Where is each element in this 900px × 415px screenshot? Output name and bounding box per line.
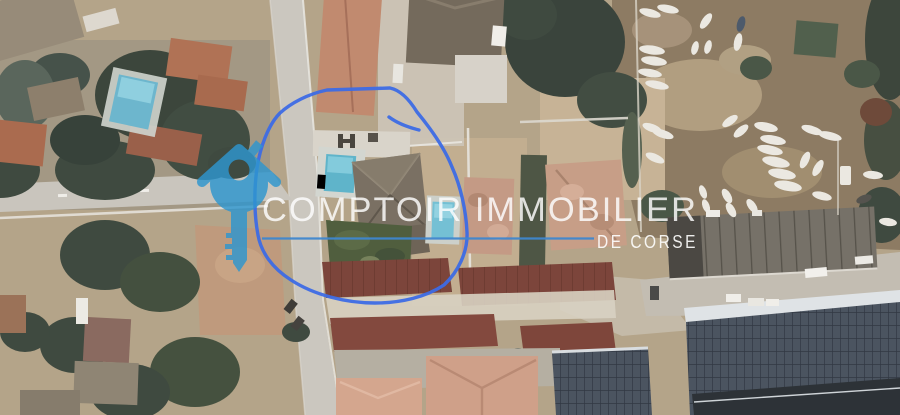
brand-watermark: COMPTOIR IMMOBILIER DE CORSE [0,0,900,415]
brand-tagline: DE CORSE [597,231,698,252]
brand-wordmark: COMPTOIR IMMOBILIER [262,191,698,229]
aerial-photo-stage: COMPTOIR IMMOBILIER DE CORSE [0,0,900,415]
